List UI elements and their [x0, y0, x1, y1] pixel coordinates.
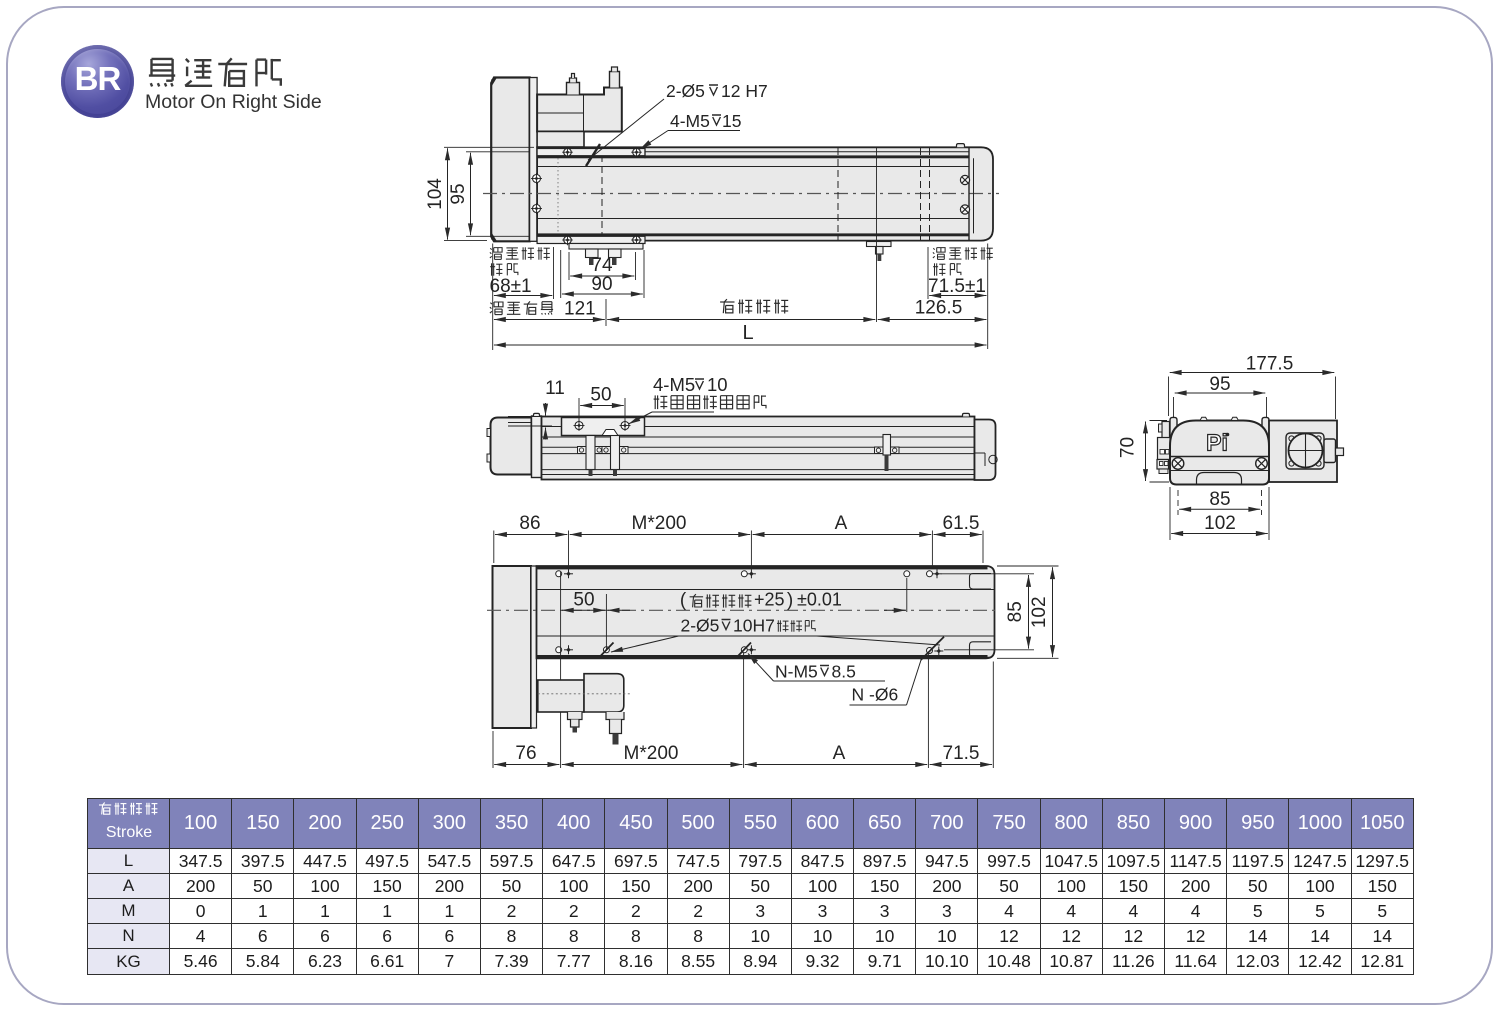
svg-text:M*200: M*200: [632, 513, 687, 534]
svg-text:+25: +25: [754, 590, 785, 610]
svg-text:±0.01: ±0.01: [797, 590, 842, 610]
svg-text:102: 102: [1029, 596, 1050, 628]
svg-text:95: 95: [448, 183, 469, 204]
svg-text:71.5: 71.5: [943, 743, 980, 764]
svg-text:N-M5: N-M5: [775, 662, 818, 682]
svg-text:): ): [787, 590, 793, 611]
svg-text:4-M5: 4-M5: [653, 374, 695, 395]
svg-text:12 H7: 12 H7: [721, 81, 768, 101]
svg-text:68±1: 68±1: [490, 276, 532, 297]
svg-text:10: 10: [707, 374, 728, 395]
svg-text:2-Ø5: 2-Ø5: [681, 616, 720, 636]
svg-text:Stroke: Stroke: [105, 824, 151, 841]
svg-text:86: 86: [519, 513, 540, 534]
svg-text:Pi: Pi: [1206, 430, 1228, 456]
svg-text:70: 70: [1118, 437, 1139, 458]
svg-text:126.5: 126.5: [915, 298, 963, 319]
svg-text:A: A: [833, 743, 846, 764]
svg-text:121: 121: [564, 299, 596, 320]
svg-text:104: 104: [425, 178, 446, 210]
svg-text:4-M5: 4-M5: [670, 111, 710, 131]
svg-text:M*200: M*200: [624, 743, 679, 764]
svg-text:A: A: [835, 513, 848, 534]
svg-text:85: 85: [1005, 601, 1026, 622]
svg-text:177.5: 177.5: [1246, 354, 1294, 375]
svg-text:50: 50: [573, 590, 594, 611]
svg-text:85: 85: [1209, 489, 1230, 510]
svg-text:15: 15: [722, 111, 741, 131]
svg-text:2-Ø5: 2-Ø5: [666, 81, 705, 101]
svg-text:10H7: 10H7: [733, 616, 775, 636]
svg-text:102: 102: [1204, 513, 1236, 534]
svg-text:11: 11: [545, 378, 565, 399]
svg-text:61.5: 61.5: [943, 513, 980, 534]
svg-text:90: 90: [591, 274, 612, 295]
svg-text:(: (: [680, 590, 687, 611]
svg-text:74: 74: [591, 255, 613, 276]
svg-text:71.5±1: 71.5±1: [928, 276, 986, 297]
svg-text:95: 95: [1209, 374, 1230, 395]
svg-text:8.5: 8.5: [832, 662, 856, 682]
svg-text:N -Ø6: N -Ø6: [852, 685, 899, 705]
svg-text:L: L: [742, 322, 753, 344]
svg-text:50: 50: [590, 385, 611, 406]
svg-text:76: 76: [515, 743, 536, 764]
